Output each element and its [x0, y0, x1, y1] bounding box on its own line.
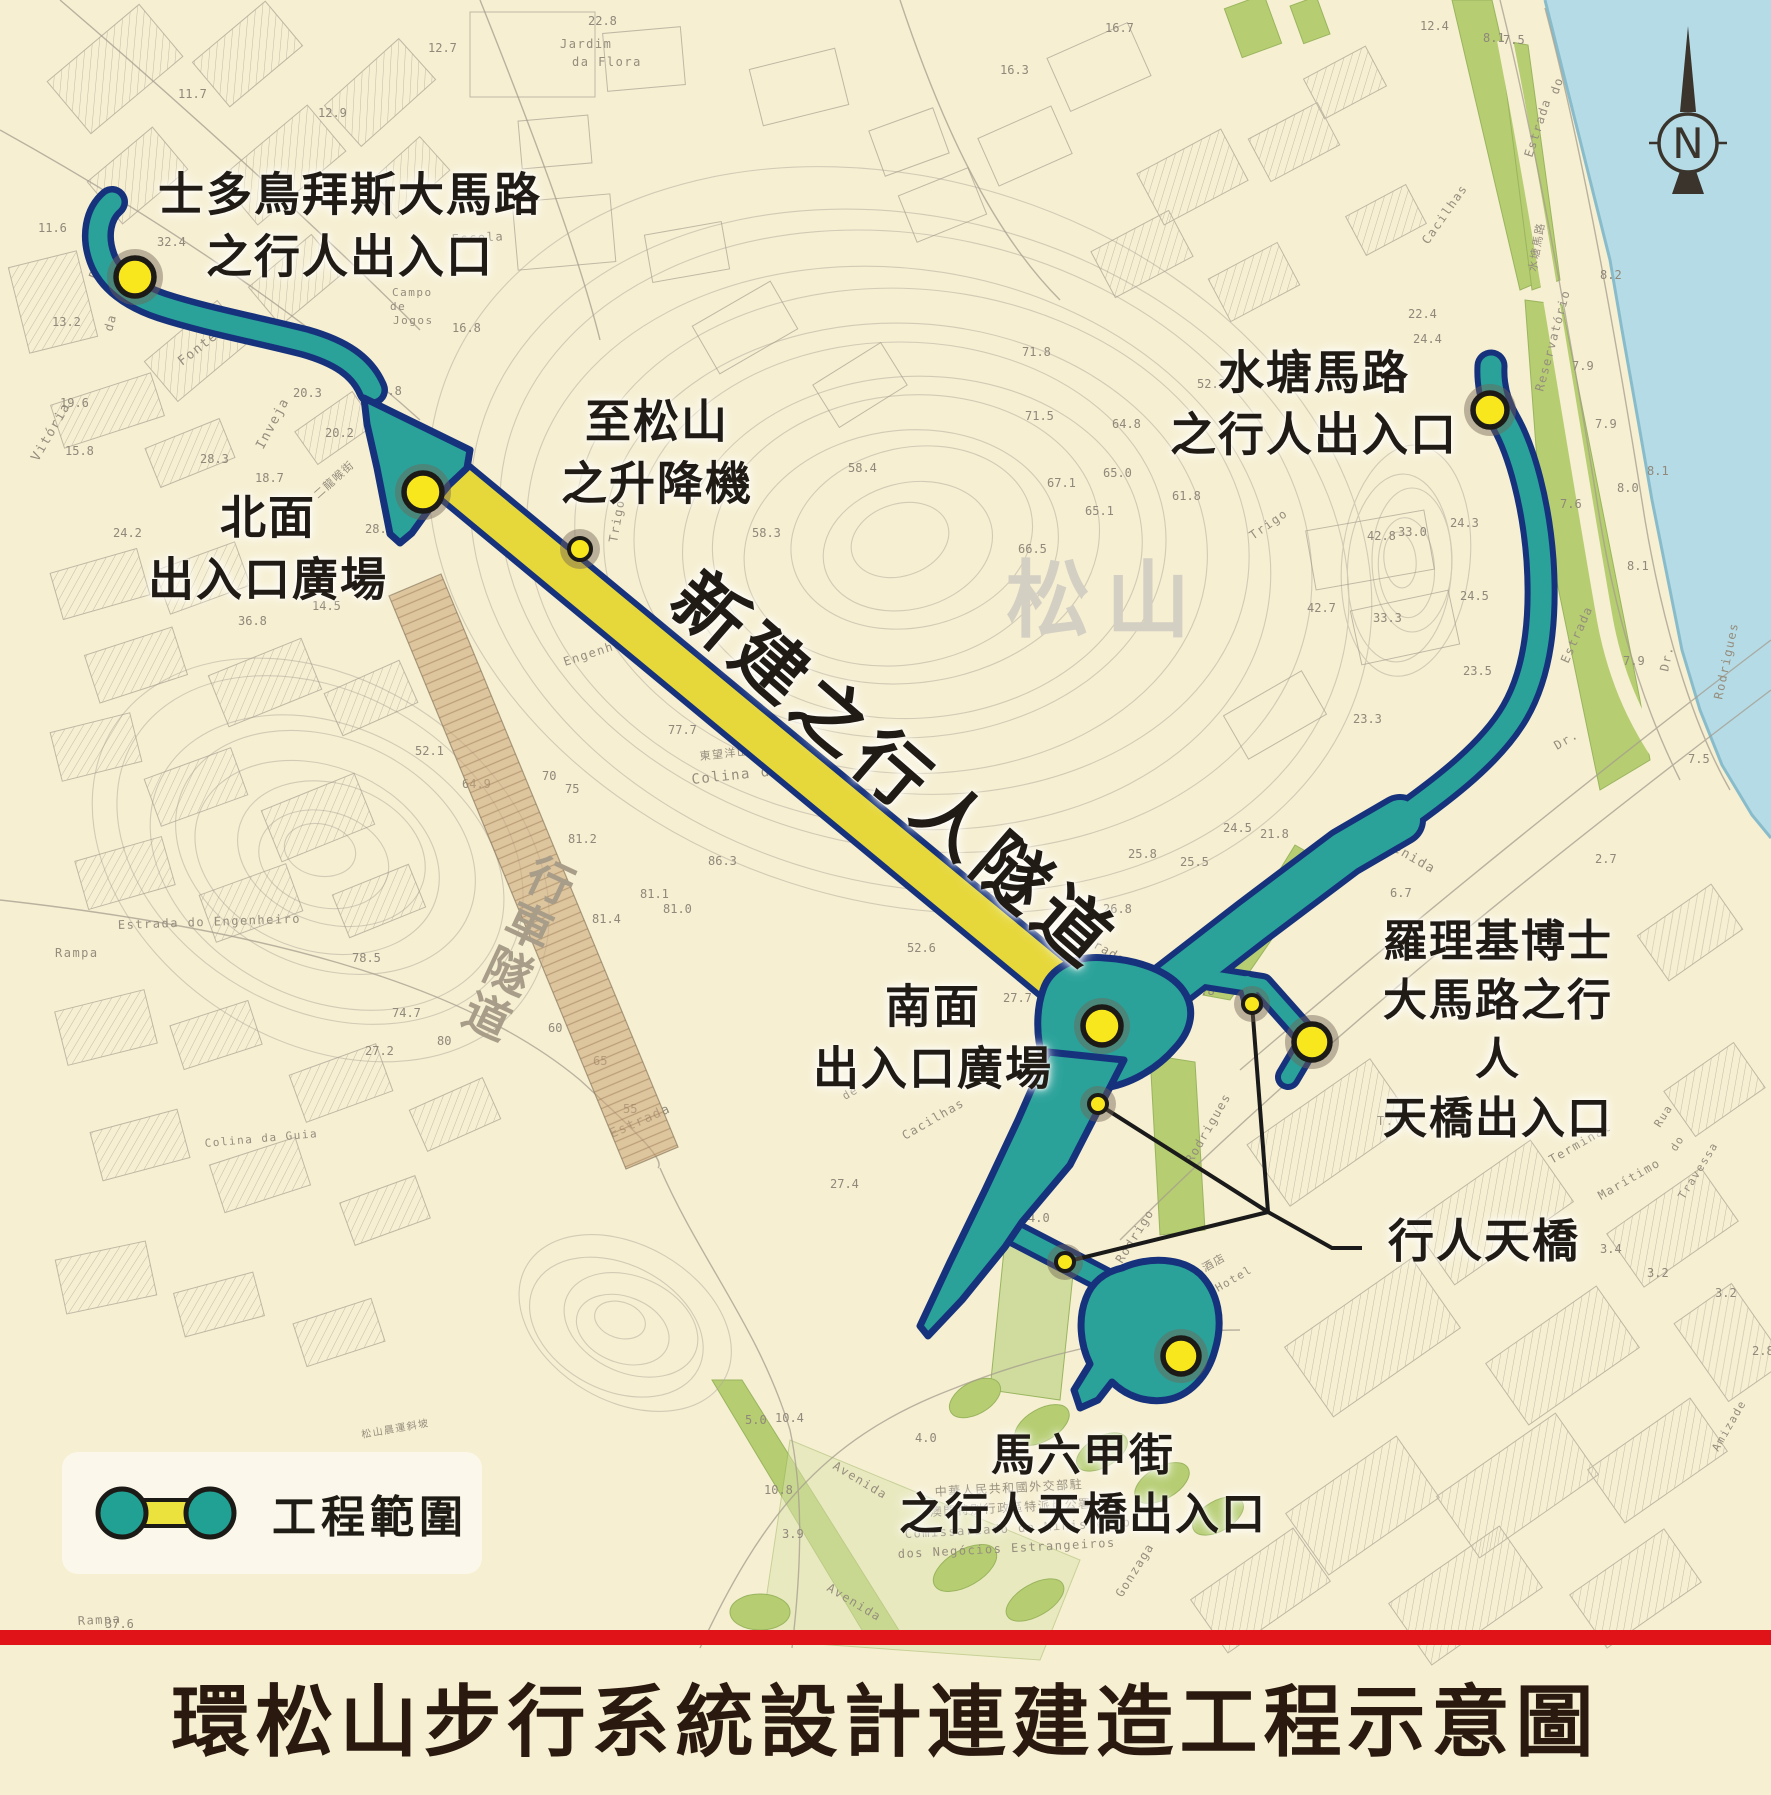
- elev: 12.9: [318, 106, 347, 120]
- page-title: 環松山步行系統設計連建造工程示意圖: [0, 1660, 1771, 1772]
- elev: 67.1: [1047, 476, 1076, 490]
- elev: 27.4: [830, 1177, 859, 1191]
- marker-sidonio-pais-entrance: [107, 249, 163, 305]
- elev: 25.5: [1180, 855, 1209, 869]
- elev: 13.2: [52, 315, 81, 329]
- elev: 8.2: [1600, 268, 1622, 282]
- elev: 8.1: [1627, 559, 1649, 573]
- elev: 37.6: [105, 1617, 134, 1631]
- elev: 7.6: [1560, 497, 1582, 511]
- elev: 24.5: [1223, 821, 1252, 835]
- elev: 20.2: [325, 426, 354, 440]
- elev: 7.9: [1623, 654, 1645, 668]
- elev: 24.4: [1413, 332, 1442, 346]
- street-name: Jogos: [393, 314, 434, 327]
- street-name: Escola: [451, 229, 504, 246]
- elev: 7.9: [1572, 359, 1594, 373]
- elev: 36.8: [238, 614, 267, 628]
- elev: 11.7: [178, 87, 207, 101]
- elev: 81.2: [568, 832, 597, 846]
- compass-north-label: N: [1672, 119, 1703, 168]
- schematic-map-page: Jardimda FloraEscolaCampodeJogosRuadaFon…: [0, 0, 1771, 1795]
- elev: 28.3: [200, 452, 229, 466]
- elev: 81.4: [592, 912, 621, 926]
- elev: 27.3: [1052, 935, 1081, 949]
- elev: 75: [565, 782, 579, 796]
- elev: 18.7: [255, 471, 284, 485]
- elev: 3.2: [1715, 1286, 1737, 1300]
- elev: 2.7: [1595, 852, 1617, 866]
- elev: 86.3: [708, 854, 737, 868]
- legend: 工程範圍: [62, 1452, 482, 1574]
- elev: 20.3: [293, 386, 322, 400]
- elev: 8.1: [1483, 31, 1505, 45]
- elev: 22.4: [1408, 307, 1437, 321]
- elev: 15.8: [65, 444, 94, 458]
- marker-footbridge-node-lower: [1047, 1244, 1083, 1280]
- elev: 66.5: [1018, 542, 1047, 556]
- elev: 52.6: [907, 941, 936, 955]
- elev: 10.8: [764, 1483, 793, 1497]
- elev: 22.8: [588, 14, 617, 28]
- elev: 32.4: [157, 235, 186, 249]
- elev: 3.9: [782, 1527, 804, 1541]
- elev: 81.0: [663, 902, 692, 916]
- elev: 52.1: [415, 744, 444, 758]
- marker-reservoir-road-entrance: [1464, 384, 1516, 436]
- elev: 12.4: [1420, 19, 1449, 33]
- elev: 70: [542, 769, 556, 783]
- elev: 8.0: [1617, 481, 1639, 495]
- elev: 5.0: [745, 1413, 767, 1427]
- elev: 12.7: [428, 41, 457, 55]
- red-separator: [0, 1630, 1771, 1645]
- elev: 7.5: [1688, 752, 1710, 766]
- marker-south-plaza: [1074, 998, 1130, 1054]
- elev: 78.5: [352, 951, 381, 965]
- elev: 77.7: [668, 723, 697, 737]
- elev: 3.4: [1600, 1242, 1622, 1256]
- elev: 33.3: [1373, 611, 1402, 625]
- marker-footbridge-node-mid: [1080, 1086, 1116, 1122]
- street-name: T.V.: [1377, 1114, 1412, 1128]
- elev: 16.3: [1000, 63, 1029, 77]
- street-name: de: [390, 300, 406, 313]
- street-name: Rampa: [55, 946, 99, 960]
- street-name: da Flora: [572, 55, 642, 69]
- elev: 24.3: [1450, 516, 1479, 530]
- elev: 81.1: [640, 887, 669, 901]
- elev: 8.1: [1647, 464, 1669, 478]
- elev: 24.2: [113, 526, 142, 540]
- elev: 71.8: [1022, 345, 1051, 359]
- legend-label: 工程範圍: [272, 1481, 468, 1545]
- elev: 24.5: [1460, 589, 1489, 603]
- elev: 58.4: [848, 461, 877, 475]
- marker-rodrigues-entrance: [1285, 1015, 1339, 1069]
- elev: 27.2: [365, 1044, 394, 1058]
- marker-elevator-to-guia: [560, 529, 600, 569]
- elev: 19.6: [60, 396, 89, 410]
- elev: 26.8: [1103, 902, 1132, 916]
- elev: 10.4: [775, 1411, 804, 1425]
- elev: 7.5: [1503, 33, 1525, 47]
- street-name: Jardim: [560, 37, 612, 51]
- elev: 58.3: [752, 526, 781, 540]
- elev: 4.3: [998, 1439, 1020, 1453]
- elev: 33.0: [1398, 525, 1427, 539]
- elev: 23.5: [1463, 664, 1492, 678]
- elev: 2.8: [1752, 1344, 1771, 1358]
- elev: 65.0: [1103, 466, 1132, 480]
- marker-malacca-entrance: [1154, 1329, 1208, 1383]
- elev: 6.7: [1390, 886, 1412, 900]
- elev: 11.6: [38, 221, 67, 235]
- elev: 61.8: [1172, 489, 1201, 503]
- elev: 7.9: [1595, 417, 1617, 431]
- marker-footbridge-node-upper: [1234, 986, 1270, 1022]
- elev: 4.0: [915, 1431, 937, 1445]
- elev: 80: [437, 1034, 451, 1048]
- elev: 65.1: [1085, 504, 1114, 518]
- elev: 71.5: [1025, 409, 1054, 423]
- elev: 21.8: [1260, 827, 1289, 841]
- elev: 52.2: [1197, 377, 1226, 391]
- street-name: Campo: [392, 286, 433, 299]
- elev: 60: [548, 1021, 562, 1035]
- marker-north-plaza: [395, 464, 451, 520]
- elev: 14.5: [312, 599, 341, 613]
- elev: 74.7: [392, 1006, 421, 1020]
- elev: 16.7: [1105, 21, 1134, 35]
- elev: 42.7: [1307, 601, 1336, 615]
- elev: 23.3: [1353, 712, 1382, 726]
- elev: 64.8: [1112, 417, 1141, 431]
- project-scope-icon: [88, 1480, 248, 1546]
- elev: 25.8: [1128, 847, 1157, 861]
- elev: 3.2: [1647, 1266, 1669, 1280]
- elev: 16.8: [452, 321, 481, 335]
- elev: 27.7: [1003, 991, 1032, 1005]
- elev: 42.8: [1367, 529, 1396, 543]
